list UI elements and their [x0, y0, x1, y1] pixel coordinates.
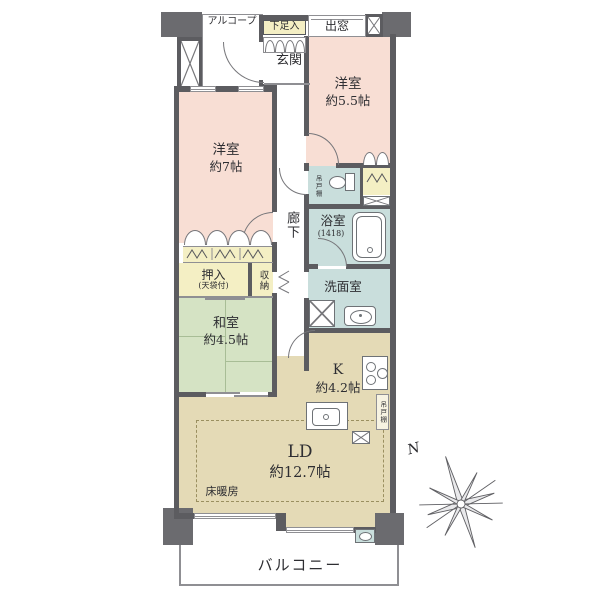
shoe-cabinet: [263, 37, 306, 53]
hanger-pipe-bedroom7: [185, 248, 271, 260]
wall: [346, 264, 392, 269]
entrance-label: 玄関: [266, 52, 312, 70]
balcony-slop-sink: [355, 529, 375, 543]
room-living-ext: [282, 513, 375, 527]
corridor-label: 廊下: [282, 202, 300, 248]
storage-label: 収納: [254, 266, 271, 294]
vanity-sink: [344, 306, 376, 326]
folding-doors-bedroom7-closet: [184, 229, 272, 245]
wall: [272, 299, 277, 392]
wall: [174, 392, 206, 397]
balcony-label: バルコニー: [240, 555, 360, 575]
wall: [276, 513, 286, 531]
compass-icon: [396, 442, 526, 558]
toilet-tank: [345, 173, 355, 191]
pillar-top-left: [161, 12, 202, 37]
wall: [174, 86, 179, 513]
wall: [248, 263, 252, 296]
oshiire-label: 押入(天袋付): [181, 265, 246, 295]
bay-window-label: 出窓: [308, 17, 366, 35]
washroom-label: 洗面室: [312, 279, 374, 295]
toilet-hanging-shelf-label: 吊戸棚: [313, 169, 323, 203]
thin-line: [183, 262, 273, 263]
kitchen-hanging-shelf-label: 吊戸棚: [379, 401, 386, 424]
wall: [304, 264, 318, 269]
window-living-left: [194, 513, 276, 519]
entrance-step: [264, 83, 310, 85]
floor-heating-label: 床暖房: [198, 485, 246, 499]
x-box-bedroom55: [363, 196, 390, 206]
tatami-line: [225, 361, 273, 362]
hanger-pipe-bedroom55-closet: [365, 172, 389, 184]
bathtub: [352, 212, 386, 262]
window-bedroom7-b: [238, 86, 264, 92]
window-bedroom7-a: [190, 86, 216, 92]
pillar-top-right: [382, 12, 411, 37]
bath-label: 浴室: [312, 213, 354, 229]
wall: [174, 513, 194, 519]
toilet-bowl: [329, 176, 346, 189]
sliding-door: [205, 298, 245, 300]
window-living-right: [286, 527, 354, 533]
pipe-shaft-left: [177, 37, 203, 90]
kitchen-label: K約4.2帖: [316, 360, 360, 398]
bedroom7-label: 洋室約7帖: [186, 138, 266, 178]
wall: [304, 328, 392, 333]
sliding-door: [206, 392, 240, 394]
bedroom55-label: 洋室約5.5帖: [308, 72, 388, 112]
sliding-door: [234, 395, 268, 397]
washitsu-label: 和室約4.5帖: [184, 312, 268, 352]
bath-size-label: (1418): [312, 229, 350, 239]
wall: [272, 242, 277, 272]
kitchen-counter: [306, 402, 348, 430]
floorplan: アルコープ 出窓 下足入: [0, 0, 600, 600]
double-doors-bedroom55-closet: [363, 151, 390, 165]
alcove-label: アルコープ: [200, 15, 264, 29]
pipe-shaft-top-right: [365, 14, 383, 37]
kitchen-hanging-shelf: 吊戸棚: [376, 394, 389, 430]
washing-machine: [309, 300, 335, 327]
wall: [268, 392, 277, 397]
compass: N: [396, 442, 526, 558]
door-arc-living: [288, 330, 315, 358]
door-arc-toilet: [279, 168, 306, 195]
wall: [272, 86, 277, 212]
stove: [362, 356, 388, 390]
shoe-cabinet-label: 下足入: [263, 20, 306, 35]
bifold-door-storage: [276, 270, 291, 294]
living-label: LD約12.7帖: [240, 440, 360, 484]
